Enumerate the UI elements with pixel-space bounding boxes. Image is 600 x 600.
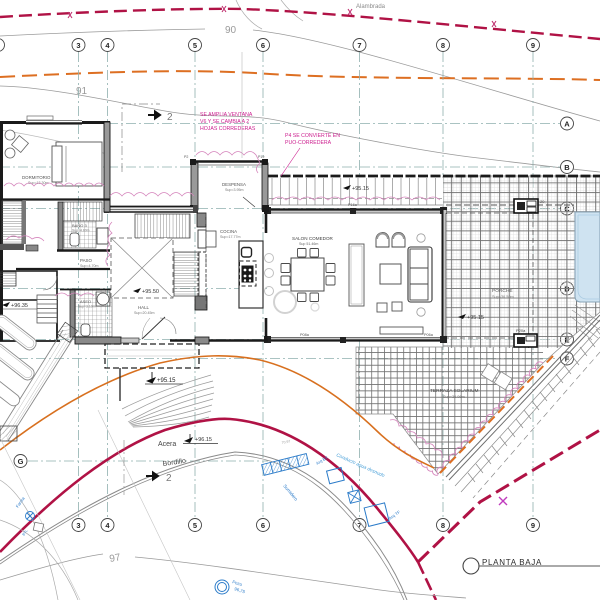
svg-text:COCINA: COCINA (220, 229, 237, 234)
svg-text:HALL: HALL (138, 305, 150, 310)
svg-text:+95.15: +95.15 (352, 186, 369, 192)
svg-text:+95.15: +95.15 (157, 378, 176, 384)
svg-text:+95.50: +95.50 (142, 289, 159, 295)
svg-text:P16a: P16a (348, 203, 358, 207)
svg-text:SALON COMEDOR: SALON COMEDOR (292, 236, 334, 241)
svg-text:Sup=4.70m: Sup=4.70m (80, 264, 98, 268)
svg-text:PORCHE: PORCHE (492, 288, 513, 294)
svg-text:TERRAZA SOLARIUM: TERRAZA SOLARIUM (430, 388, 479, 394)
svg-text:P08a: P08a (300, 333, 310, 337)
svg-text:2: 2 (167, 112, 173, 123)
svg-text:8: 8 (441, 41, 445, 50)
svg-text:ASEO: ASEO (80, 299, 91, 304)
svg-text:BAÑO 3: BAÑO 3 (72, 223, 87, 228)
svg-text:5: 5 (193, 41, 197, 50)
svg-text:DESPENSA: DESPENSA (222, 182, 246, 187)
svg-text:F: F (565, 354, 570, 363)
svg-text:P20a: P20a (516, 328, 526, 333)
svg-text:9: 9 (531, 521, 535, 530)
svg-text:G: G (18, 457, 24, 466)
svg-text:Sup=4.80m: Sup=4.80m (72, 229, 90, 233)
svg-text:Sup=36.50m: Sup=36.50m (492, 295, 514, 299)
svg-text:Sup=3.10m: Sup=3.10m (78, 305, 96, 309)
svg-text:2: 2 (166, 473, 172, 484)
svg-text:5: 5 (193, 521, 197, 530)
svg-text:3: 3 (76, 41, 80, 50)
svg-text:9: 9 (531, 41, 535, 50)
svg-text:PUO-CORREDERA: PUO-CORREDERA (285, 140, 332, 146)
svg-text:Alambrada: Alambrada (356, 4, 386, 10)
svg-text:90: 90 (225, 25, 237, 36)
svg-text:8: 8 (441, 521, 445, 530)
svg-text:3: 3 (76, 521, 80, 530)
svg-text:+96.35: +96.35 (11, 303, 28, 309)
svg-text:6: 6 (261, 41, 265, 50)
svg-text:B: B (564, 163, 570, 172)
svg-text:P19: P19 (258, 155, 264, 159)
svg-text:Acera: Acera (158, 441, 176, 448)
svg-text:Sup=3.95m: Sup=3.95m (225, 188, 243, 192)
svg-text:SE AMPLIA VENTANA: SE AMPLIA VENTANA (200, 112, 253, 118)
svg-text:Sup=20.45m: Sup=20.45m (134, 311, 154, 315)
svg-text:HOJAS CORREDERAS: HOJAS CORREDERAS (200, 126, 256, 132)
svg-text:P4 SE CONVIERTE EN: P4 SE CONVIERTE EN (285, 133, 340, 139)
svg-text:+96.15: +96.15 (195, 437, 212, 443)
svg-text:A: A (564, 119, 570, 128)
svg-text:P06a: P06a (424, 333, 434, 337)
svg-text:7: 7 (357, 41, 361, 50)
svg-text:+95.15: +95.15 (467, 315, 484, 321)
svg-text:Sup=17.77m: Sup=17.77m (220, 235, 240, 239)
svg-text:Sup 51.46m: Sup 51.46m (299, 242, 318, 246)
svg-text:20: 20 (540, 199, 545, 204)
svg-text:Sup=36.06m: Sup=36.06m (443, 395, 465, 399)
svg-text:6: 6 (261, 521, 265, 530)
svg-text:PASO: PASO (80, 258, 92, 263)
svg-text:P2: P2 (184, 155, 188, 159)
svg-text:91: 91 (76, 86, 88, 97)
svg-text:DORMITORIO 3: DORMITORIO 3 (22, 175, 55, 180)
